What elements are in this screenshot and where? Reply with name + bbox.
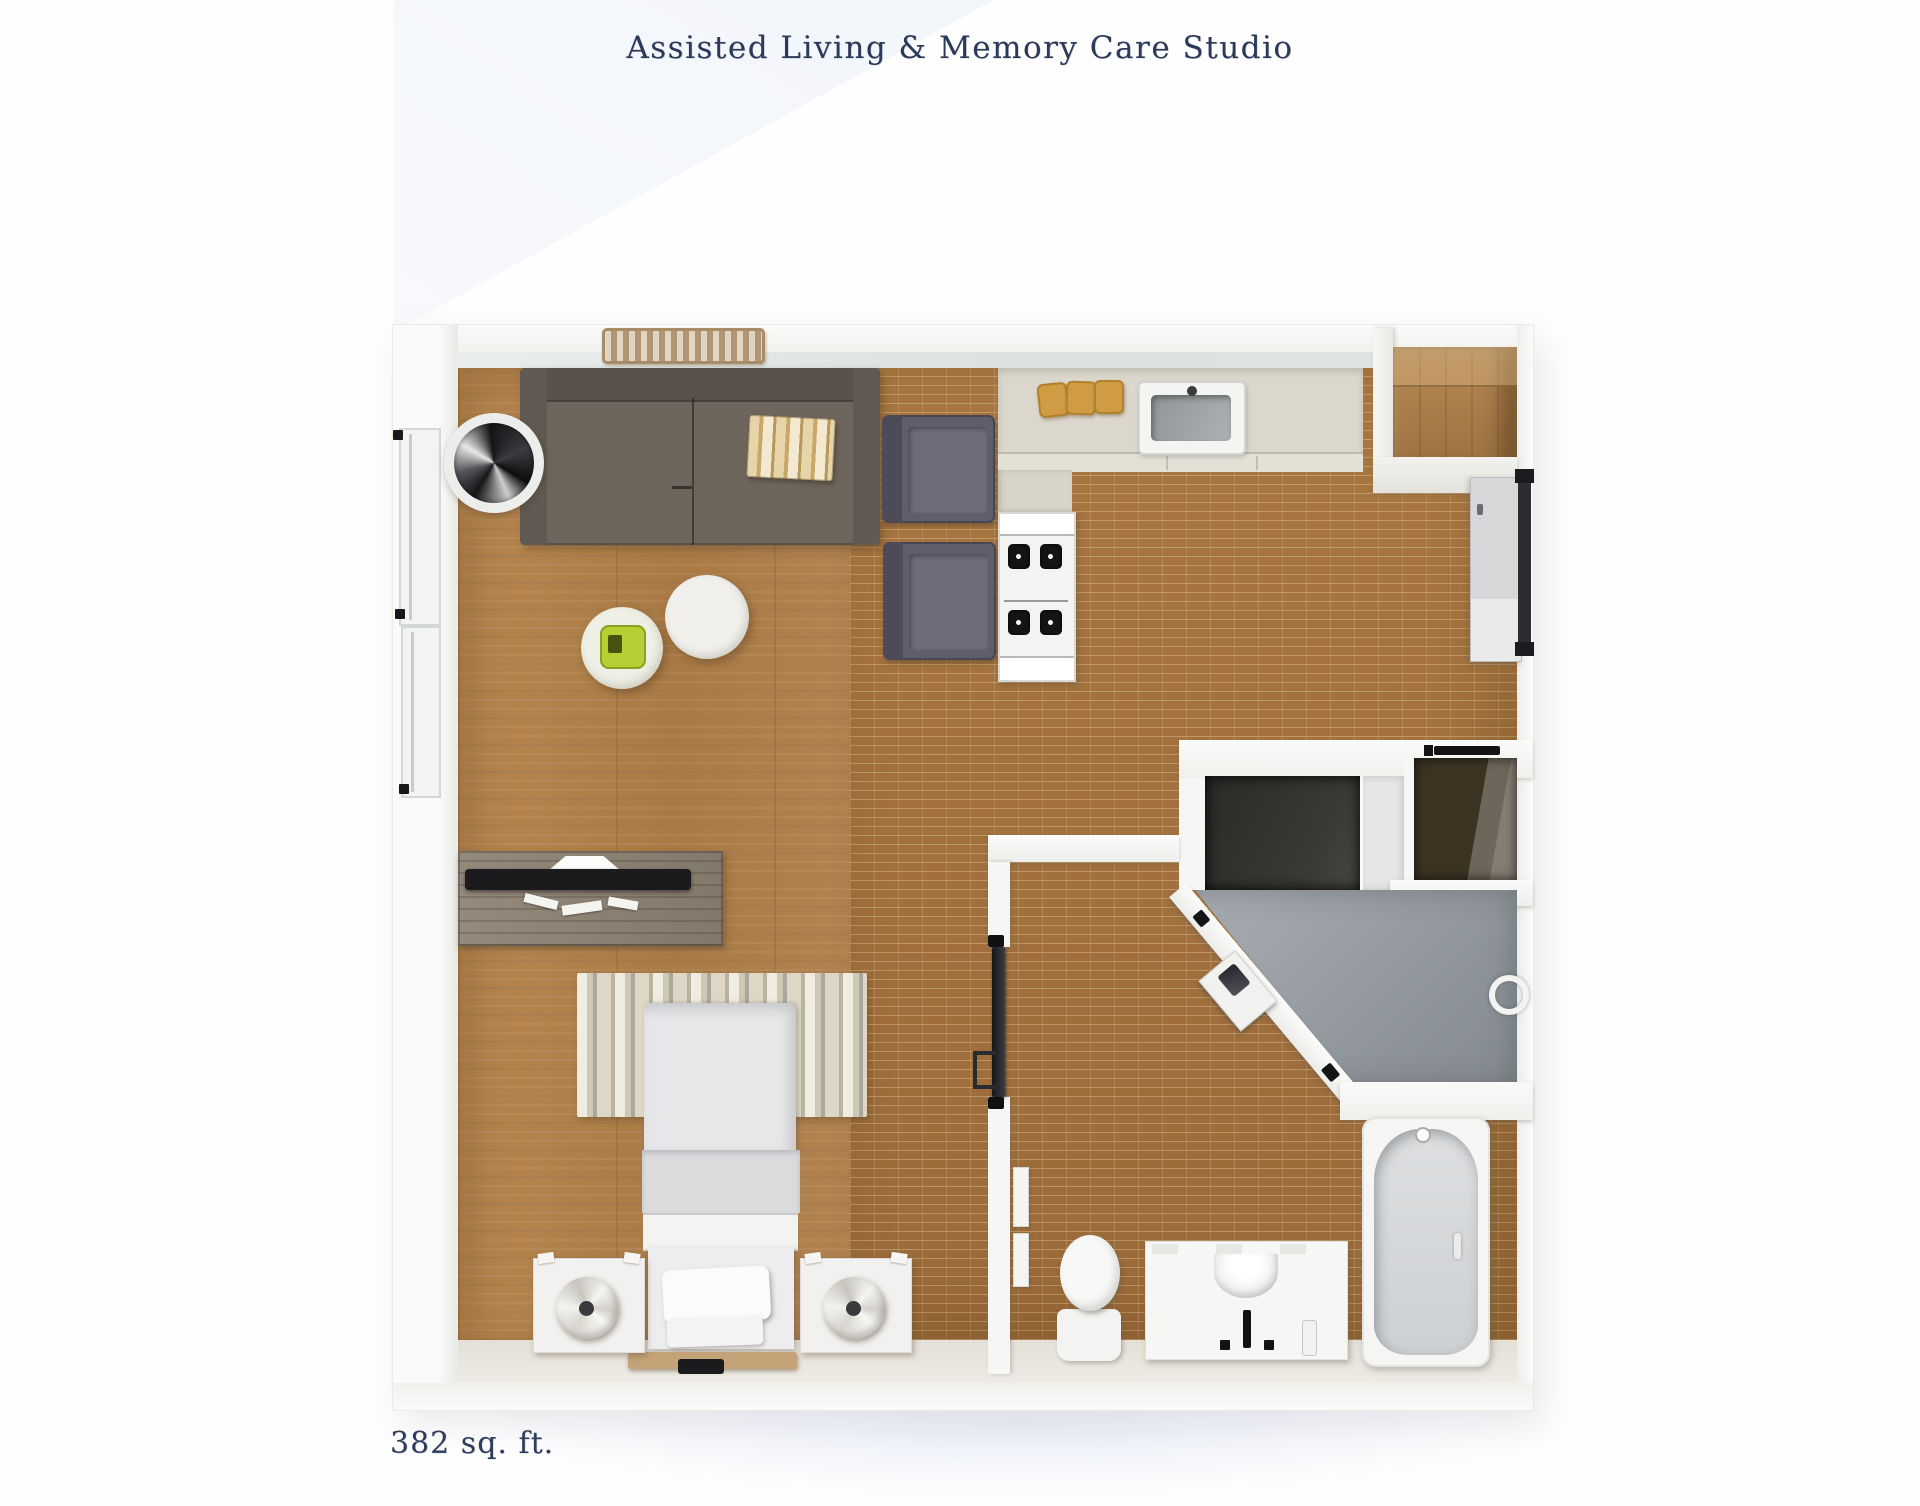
door-hinge-icon xyxy=(988,1097,1004,1109)
wall-bottom xyxy=(393,1383,1533,1410)
kitchen-divider-wall xyxy=(1373,328,1393,468)
closet-left-wall xyxy=(1179,778,1205,890)
burner-icon xyxy=(1040,610,1062,635)
stove-divider xyxy=(1004,600,1068,602)
vanity-sink-bowl xyxy=(1214,1254,1278,1298)
vanity-counter-items xyxy=(1152,1244,1340,1254)
sofa-arm-right xyxy=(853,368,880,545)
toilet-base xyxy=(1057,1309,1121,1361)
bathroom-left-wall xyxy=(988,1097,1010,1374)
foot-bench-cushion xyxy=(678,1359,724,1374)
closet-shelf xyxy=(1360,776,1407,890)
bathroom-top-wall xyxy=(988,835,1179,862)
panel-handle xyxy=(1477,504,1483,515)
wardrobe xyxy=(1414,758,1517,880)
stove xyxy=(998,512,1076,682)
book-stack xyxy=(746,415,835,481)
window-frame-mark xyxy=(399,784,409,794)
bed-sheet-band xyxy=(643,1213,798,1251)
bathroom-vanity xyxy=(1145,1241,1348,1360)
closet-divider-wall xyxy=(1404,758,1414,890)
door-track xyxy=(1518,473,1531,648)
keyboard xyxy=(561,900,602,915)
soap-dispenser-icon xyxy=(1302,1320,1317,1356)
alcove-shelf xyxy=(1393,347,1517,387)
coffee-table xyxy=(665,575,749,659)
bed xyxy=(642,1002,800,1354)
door-hinge-icon xyxy=(988,935,1004,947)
window xyxy=(401,626,441,798)
tub-faucet-icon xyxy=(1415,1127,1431,1143)
vanity-knob-icon xyxy=(1220,1340,1230,1350)
stove-control-band xyxy=(1000,514,1074,536)
window xyxy=(399,428,441,626)
floorplan xyxy=(393,325,1533,1410)
vanity-knob-icon xyxy=(1264,1340,1274,1350)
cutting-board xyxy=(1065,380,1096,415)
burner-icon xyxy=(1008,544,1030,569)
table-lamp-icon xyxy=(823,1277,885,1339)
nightstand xyxy=(533,1258,645,1353)
cutting-board xyxy=(1036,382,1069,419)
top-wall-inner-face xyxy=(458,352,1373,368)
entry-alcove xyxy=(1393,347,1517,473)
armchair xyxy=(882,415,995,523)
sofa-back xyxy=(520,368,880,402)
table-tray xyxy=(600,625,646,669)
track-cap xyxy=(1515,469,1534,483)
stove-front-band xyxy=(1000,656,1074,680)
monitor xyxy=(465,869,691,890)
sink-bowl xyxy=(1151,395,1231,441)
page-title: Assisted Living & Memory Care Studio xyxy=(0,30,1920,66)
toilet xyxy=(1060,1235,1120,1311)
area-label: 382 sq. ft. xyxy=(390,1426,554,1461)
towel-ring-icon xyxy=(1489,975,1529,1015)
kitchen-sink xyxy=(1138,381,1246,455)
floorplan-page: Assisted Living & Memory Care Studio xyxy=(0,0,1920,1506)
walk-in-closet xyxy=(1205,776,1360,890)
sofa-crease xyxy=(672,486,692,489)
bed-head-section xyxy=(644,1003,796,1150)
nightstand xyxy=(800,1258,912,1353)
keyboard xyxy=(523,893,558,910)
faucet-icon xyxy=(1187,386,1197,396)
towel-bar xyxy=(1013,1233,1029,1287)
closet-rod xyxy=(1434,746,1500,755)
table-lamp-icon xyxy=(556,1277,618,1339)
bathtub xyxy=(1362,1117,1490,1367)
folded-blanket xyxy=(667,1316,764,1347)
mouse xyxy=(607,896,638,910)
window-frame-mark xyxy=(393,430,403,440)
wall-top xyxy=(393,325,1533,352)
vanity-faucet-icon xyxy=(1243,1310,1251,1348)
track-cap xyxy=(1515,642,1534,656)
desk xyxy=(458,851,723,946)
armchair xyxy=(883,542,996,660)
entry-rug xyxy=(602,328,765,364)
cutting-board xyxy=(1094,380,1124,414)
burner-icon xyxy=(1008,610,1030,635)
tub-head-wall xyxy=(1340,1082,1533,1120)
storage-panel xyxy=(1470,477,1522,662)
tub-grab-bar xyxy=(1454,1233,1461,1259)
floor-fan-decor xyxy=(444,413,544,513)
burner-icon xyxy=(1040,544,1062,569)
bathtub-basin xyxy=(1374,1129,1478,1355)
counter-front-lip xyxy=(998,452,1363,472)
closet-rod-bracket xyxy=(1424,745,1433,756)
door-handle-icon xyxy=(973,1051,996,1089)
bed-mid-section xyxy=(642,1150,800,1213)
towel-bar xyxy=(1013,1167,1029,1227)
sofa-cushion-seam xyxy=(692,398,694,545)
window-frame-mark xyxy=(395,609,405,619)
kitchen-counter-column xyxy=(998,470,1072,512)
